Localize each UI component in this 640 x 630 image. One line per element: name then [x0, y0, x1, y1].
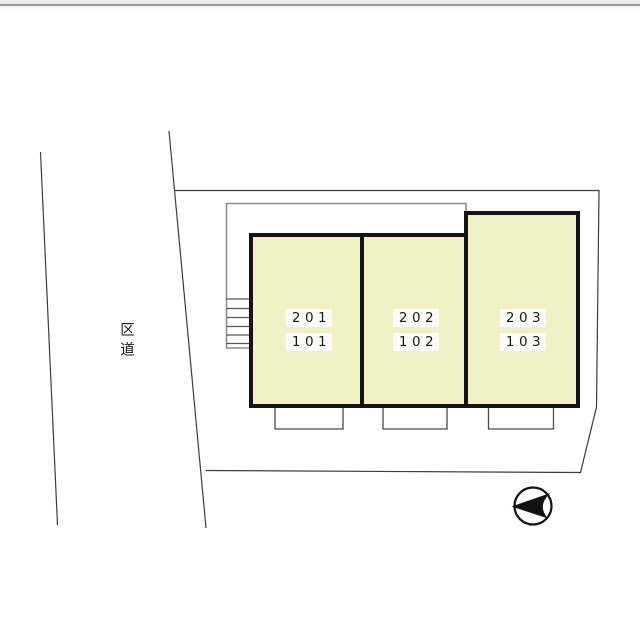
porch-outline-1: [275, 406, 343, 429]
room-1-upper-unit-label: 201: [286, 309, 332, 327]
room-2-upper-unit-label: 202: [393, 309, 439, 327]
porch-outline-2: [383, 406, 447, 429]
north-arrow-icon: [512, 488, 552, 525]
room-3-lower-unit-label: 103: [500, 333, 546, 351]
room-3-upper-unit-label: 203: [500, 309, 546, 327]
site-plan-canvas: 区道 201 101 202 102 203 103: [0, 0, 640, 630]
stairs-icon: [227, 299, 252, 344]
room-1-lower-unit-label: 101: [286, 333, 332, 351]
porch-outline-3: [489, 406, 554, 429]
road-label: 区道: [116, 322, 137, 361]
road-edge-left-line: [41, 152, 58, 525]
room-2-lower-unit-label: 102: [393, 333, 439, 351]
